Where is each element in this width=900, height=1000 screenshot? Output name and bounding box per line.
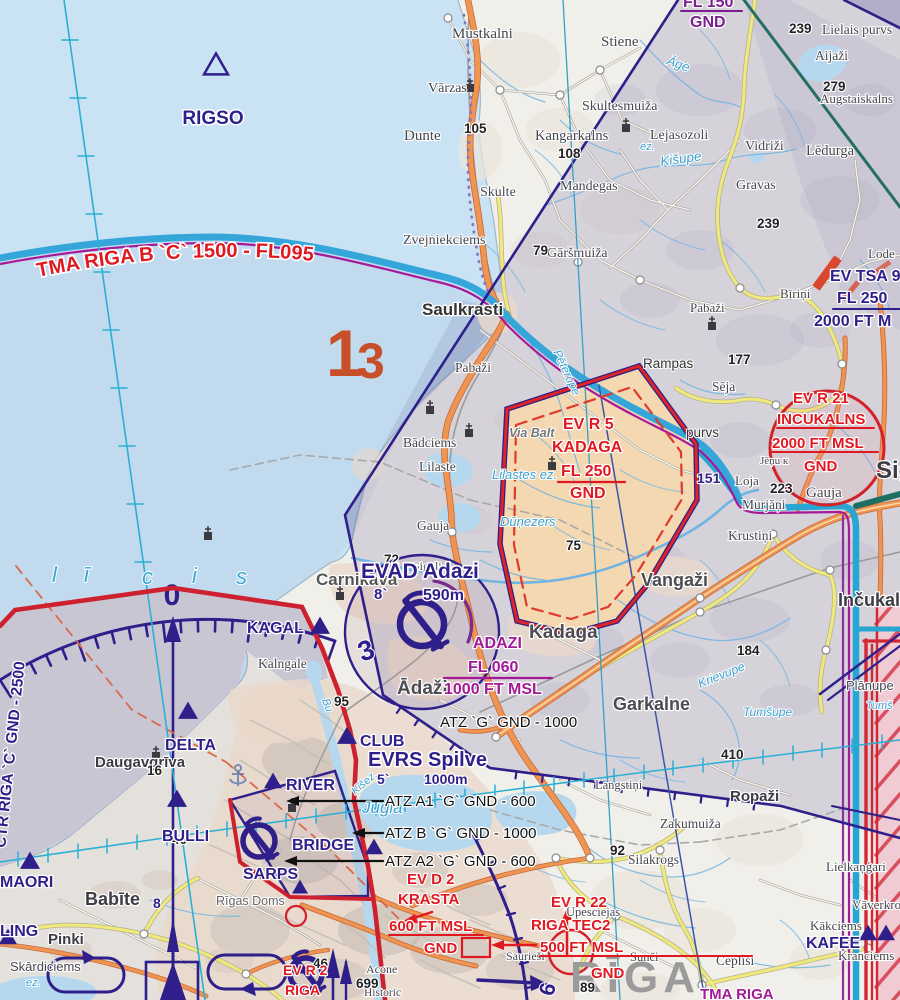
svg-text:Gauja: Gauja xyxy=(806,485,842,501)
svg-text:EVAD Adazi: EVAD Adazi xyxy=(361,560,479,583)
svg-text:Inčukalns: Inčukalns xyxy=(838,590,900,610)
svg-text:GND: GND xyxy=(424,940,458,957)
svg-text:Loja: Loja xyxy=(735,473,759,488)
svg-text:699: 699 xyxy=(356,976,379,991)
svg-text:Mandegas: Mandegas xyxy=(560,179,618,194)
svg-text:RIGA: RIGA xyxy=(285,982,320,998)
svg-text:GND: GND xyxy=(804,458,838,475)
svg-text:239: 239 xyxy=(757,216,780,231)
svg-text:Kalngale: Kalngale xyxy=(258,656,307,671)
svg-text:3: 3 xyxy=(357,333,385,389)
svg-text:RIVER: RIVER xyxy=(286,777,335,794)
svg-text:EV R 22: EV R 22 xyxy=(551,894,607,911)
svg-text:DELTA: DELTA xyxy=(165,737,216,754)
svg-text:Tumš: Tumš xyxy=(866,700,893,712)
svg-text:ATZ `G` GND - 1000: ATZ `G` GND - 1000 xyxy=(440,714,577,731)
svg-text:Acone: Acone xyxy=(366,962,397,976)
svg-text:EV D 2: EV D 2 xyxy=(407,871,455,888)
svg-text:Krustiņi: Krustiņi xyxy=(728,528,773,543)
svg-text:Dunte: Dunte xyxy=(404,128,441,144)
svg-text:FL 250: FL 250 xyxy=(561,463,612,480)
svg-text:RIGA TEC2: RIGA TEC2 xyxy=(531,917,610,934)
svg-text:CLUB: CLUB xyxy=(360,733,404,750)
svg-text:GND: GND xyxy=(690,14,726,31)
svg-text:600 FT MSL: 600 FT MSL xyxy=(389,918,472,935)
svg-text:Gravas: Gravas xyxy=(736,178,776,193)
svg-text:Via Balt: Via Balt xyxy=(509,426,555,440)
svg-text:KRASTA: KRASTA xyxy=(398,891,460,908)
svg-text:177: 177 xyxy=(728,352,751,367)
svg-text:Gāršmuiža: Gāršmuiža xyxy=(547,246,608,261)
svg-text:1000 FT MSL: 1000 FT MSL xyxy=(444,681,542,698)
svg-text:EVRS Spilve: EVRS Spilve xyxy=(368,749,487,771)
svg-text:Bādciems: Bādciems xyxy=(403,435,456,450)
svg-text:ez.: ez. xyxy=(640,141,655,153)
svg-text:KAGAL: KAGAL xyxy=(247,620,304,637)
svg-text:ADAZI: ADAZI xyxy=(473,635,522,652)
svg-text:Skultesmuiža: Skultesmuiža xyxy=(582,99,658,114)
svg-text:EV R 2: EV R 2 xyxy=(283,962,328,978)
svg-text:8`: 8` xyxy=(374,586,387,603)
svg-text:8: 8 xyxy=(153,895,161,911)
svg-text:Skulte: Skulte xyxy=(480,185,516,200)
svg-text:0: 0 xyxy=(164,579,181,612)
svg-text:2000 FT MSL: 2000 FT MSL xyxy=(772,435,864,452)
svg-text:92: 92 xyxy=(610,843,625,858)
svg-text:Lilastes ez.: Lilastes ez. xyxy=(492,467,557,482)
svg-text:Stiene: Stiene xyxy=(601,34,639,50)
svg-text:Zvejniekciems: Zvejniekciems xyxy=(403,233,485,248)
svg-text:BULLI: BULLI xyxy=(162,828,209,845)
svg-text:TMA RIGA: TMA RIGA xyxy=(700,986,774,1000)
svg-text:FL 150: FL 150 xyxy=(683,0,734,11)
svg-text:ATZ B `G` GND - 1000: ATZ B `G` GND - 1000 xyxy=(385,825,536,842)
svg-text:Vārzas: Vārzas xyxy=(428,81,467,96)
svg-text:Zakumuiža: Zakumuiža xyxy=(660,816,721,831)
svg-text:Kangarkalns: Kangarkalns xyxy=(535,128,609,144)
svg-text:Lielkaņģari: Lielkaņģari xyxy=(826,859,886,874)
svg-text:184: 184 xyxy=(737,643,760,658)
svg-text:Langstiņi: Langstiņi xyxy=(595,778,643,792)
svg-text:5`: 5` xyxy=(377,771,389,787)
svg-text:s: s xyxy=(236,564,247,589)
svg-text:Sig: Sig xyxy=(876,457,900,484)
svg-text:Jēņu к: Jēņu к xyxy=(760,455,789,467)
svg-text:79: 79 xyxy=(533,243,548,258)
svg-text:Plānupe: Plānupe xyxy=(846,678,894,693)
svg-text:2000 FT M: 2000 FT M xyxy=(814,313,891,330)
svg-text:KAFEE: KAFEE xyxy=(806,935,861,952)
svg-text:Saulkrasti: Saulkrasti xyxy=(422,300,503,319)
svg-text:Ropaži: Ropaži xyxy=(730,788,779,805)
svg-text:Babīte: Babīte xyxy=(85,889,140,909)
svg-text:108: 108 xyxy=(558,146,581,161)
svg-text:Rīgas Doms: Rīgas Doms xyxy=(216,894,285,908)
svg-text:Gauja: Gauja xyxy=(417,518,449,533)
svg-text:590m: 590m xyxy=(423,587,464,604)
svg-text:KADAGA: KADAGA xyxy=(552,439,623,456)
svg-text:279: 279 xyxy=(823,79,846,94)
svg-text:Ādaži: Ādaži xyxy=(397,678,448,699)
svg-text:16: 16 xyxy=(147,763,163,778)
svg-text:Rampas: Rampas xyxy=(643,356,694,371)
svg-text:Garkalne: Garkalne xyxy=(613,694,690,714)
svg-text:Lilaste: Lilaste xyxy=(419,459,456,474)
svg-text:Vangaži: Vangaži xyxy=(641,570,708,590)
svg-text:223: 223 xyxy=(770,481,793,496)
svg-text:151: 151 xyxy=(697,470,721,486)
svg-text:SARPS: SARPS xyxy=(243,866,298,883)
svg-text:75: 75 xyxy=(566,538,582,553)
svg-text:ATZ A2 `G` GND - 600: ATZ A2 `G` GND - 600 xyxy=(385,853,536,870)
svg-text:Pabaži: Pabaži xyxy=(455,360,491,375)
svg-text:Murjāņi: Murjāņi xyxy=(742,497,786,512)
svg-text:Lode: Lode xyxy=(868,246,895,261)
svg-text:FL 250: FL 250 xyxy=(837,290,888,307)
svg-text:Lielais purvs: Lielais purvs xyxy=(822,22,892,37)
svg-text:Vāverkrogs: Vāverkrogs xyxy=(852,897,900,912)
svg-text:Mustkalni: Mustkalni xyxy=(452,26,513,42)
svg-text:Daugavgrīva: Daugavgrīva xyxy=(95,754,186,771)
svg-text:Aijaži: Aijaži xyxy=(815,48,848,63)
svg-text:89: 89 xyxy=(580,980,595,995)
svg-text:Pabaži: Pabaži xyxy=(690,300,725,315)
svg-text:MAORI: MAORI xyxy=(0,874,53,891)
svg-text:EV R 21: EV R 21 xyxy=(793,390,849,407)
svg-text:239: 239 xyxy=(789,21,812,36)
svg-text:Lejasozoli: Lejasozoli xyxy=(650,128,708,143)
svg-text:Lēdurga: Lēdurga xyxy=(806,143,855,159)
svg-text:purvs: purvs xyxy=(686,425,719,440)
svg-text:FL 060: FL 060 xyxy=(468,659,519,676)
svg-text:RIGSO: RIGSO xyxy=(182,108,243,129)
svg-text:ez.: ez. xyxy=(26,977,41,989)
svg-text:c: c xyxy=(142,564,153,589)
svg-text:Kadaga: Kadaga xyxy=(529,622,598,643)
svg-text:GND: GND xyxy=(591,965,625,982)
svg-text:Bīriņi: Bīriņi xyxy=(780,286,811,301)
svg-text:500 FT MSL: 500 FT MSL xyxy=(540,939,623,956)
svg-text:105: 105 xyxy=(464,121,487,136)
svg-text:Kākciems: Kākciems xyxy=(810,918,862,933)
svg-text:GND: GND xyxy=(570,485,606,502)
svg-text:410: 410 xyxy=(721,747,744,762)
svg-text:ATZ A1 `G` GND - 600: ATZ A1 `G` GND - 600 xyxy=(385,793,536,810)
svg-text:LING: LING xyxy=(0,923,38,940)
svg-text:Silakrogs: Silakrogs xyxy=(628,852,679,867)
svg-text:Vidriži: Vidriži xyxy=(745,139,784,154)
svg-text:Sēja: Sēja xyxy=(712,379,735,394)
svg-text:95: 95 xyxy=(334,694,350,709)
svg-text:1000m: 1000m xyxy=(424,771,468,787)
svg-text:Pinki: Pinki xyxy=(48,931,84,948)
svg-text:EV TSA 9: EV TSA 9 xyxy=(830,268,900,285)
svg-text:Tumšupe: Tumšupe xyxy=(743,705,792,719)
svg-text:INCUKALNS: INCUKALNS xyxy=(777,411,865,428)
svg-text:Dūņezers: Dūņezers xyxy=(500,514,556,529)
svg-text:BRIDGE: BRIDGE xyxy=(292,837,355,854)
svg-text:Skārdіciems: Skārdіciems xyxy=(10,959,81,974)
svg-text:EV R 5: EV R 5 xyxy=(563,416,614,433)
